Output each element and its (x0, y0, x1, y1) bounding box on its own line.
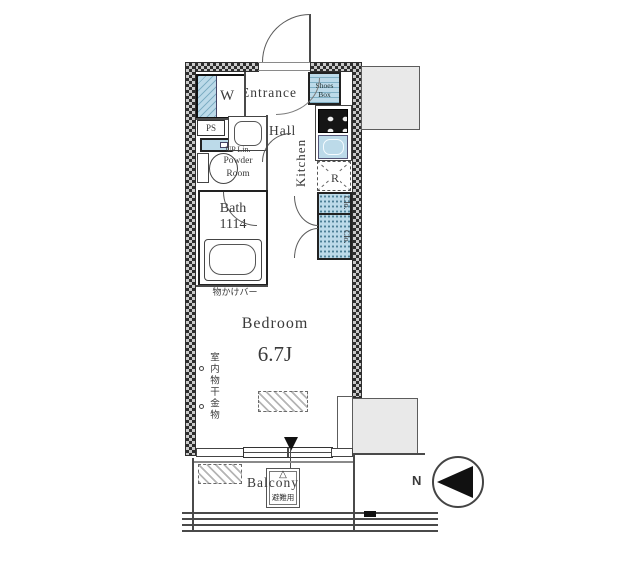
bottom-wall-right (331, 448, 353, 457)
balcony-rail-line-2 (182, 518, 438, 520)
wall-left (185, 62, 196, 456)
vanity-basin (234, 121, 262, 146)
entrance-sill-line-inner (258, 70, 310, 71)
closet-lower-label: Clo. (335, 230, 351, 246)
stove-icon (318, 109, 348, 133)
bathtub-inner (209, 244, 256, 275)
closet: Clo. Clo. (317, 192, 352, 260)
closet-divider (319, 213, 350, 215)
bedroom-label: Bedroom (200, 315, 350, 333)
evacuation-hatch-label: 避難用 (267, 492, 299, 503)
floor-plan-page: { "rooms": { "entrance": {"label": "Entr… (0, 0, 640, 569)
adjacent-area-top-right (361, 66, 420, 130)
toilet-tank (197, 153, 209, 183)
fridge-space: R (317, 161, 351, 191)
powder-room-label-line3: Room (210, 170, 266, 180)
adjacent-area-bottom-edge (352, 453, 425, 455)
balcony-label: Balcony (223, 475, 323, 491)
balcony-rail-line-3 (182, 524, 438, 526)
balcony-rail-line-1 (182, 512, 438, 514)
closet-door-arc-top (294, 196, 318, 226)
compass-north-arrow (437, 466, 473, 498)
laundry-hook-dot-bottom (199, 404, 204, 409)
bedroom-size-label: 6.7J (200, 342, 350, 367)
side-window (337, 396, 353, 454)
closet-door-arc-bottom (294, 228, 318, 258)
bedroom-dashed-area (258, 391, 308, 412)
kitchen-sink (318, 135, 348, 159)
fridge-label: R (330, 171, 340, 186)
washer-pan (198, 76, 217, 117)
closet-upper-label: Clo. (335, 196, 351, 212)
balcony-partition-marker (364, 511, 376, 517)
balcony-left-edge (192, 458, 194, 531)
washer-label: W (220, 88, 234, 105)
entrance-sill-line-outer (258, 62, 310, 63)
powder-room-label-line1: UP Lin. (210, 146, 266, 154)
wall-washer-entrance (244, 72, 246, 120)
powder-room-label-line2: Powder (210, 157, 266, 167)
entrance-door-swing-arc (262, 14, 310, 62)
kitchen-label: Kitchen (293, 118, 307, 208)
pipe-space-box: PS (197, 120, 225, 136)
adjacent-area-bottom-right (352, 398, 418, 454)
compass-north-label: N (412, 473, 421, 488)
laundry-hook-dot-top (199, 366, 204, 371)
pipe-space-label: PS (206, 123, 216, 133)
entrance-step-curve (276, 78, 320, 115)
compass-circle (432, 456, 484, 508)
wall-top-left (185, 62, 259, 72)
indoor-laundry-hardware-label: 室内物干金物 (206, 352, 220, 421)
balcony-top-line (193, 461, 353, 463)
balcony-rail-line-4 (182, 530, 438, 532)
washer-space: W (196, 74, 246, 119)
coat-hanger-bar-label: 物かけバー (199, 289, 271, 298)
kitchen-sink-basin (323, 139, 344, 155)
bathtub (204, 239, 262, 281)
window-marker-line (290, 448, 291, 470)
wall-bath-bedroom (196, 285, 268, 287)
bottom-wall-left (196, 448, 244, 457)
kitchen-counter (315, 105, 352, 161)
